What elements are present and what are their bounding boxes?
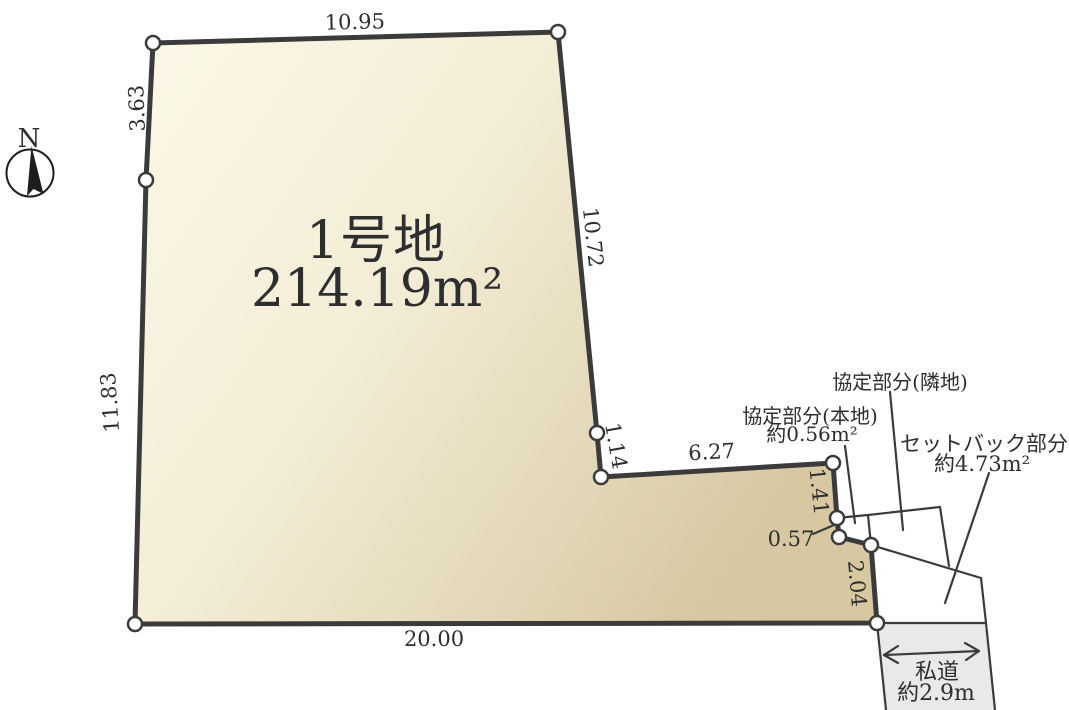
- dimension-left: 11.83: [96, 372, 124, 434]
- compass: N: [7, 124, 54, 197]
- vertex-marker: [870, 616, 884, 630]
- agreement-subject-area-label: 約0.56m²: [766, 422, 858, 446]
- setback-area-label: 約4.73m²: [934, 452, 1030, 476]
- vertex-marker: [594, 470, 608, 484]
- parcel-1-shape: [135, 32, 877, 624]
- leader-agreement-neighbor: [890, 392, 903, 530]
- dimension-right-step2: 0.57: [768, 527, 815, 551]
- vertex-marker: [128, 617, 142, 631]
- setback-divider-line: [871, 545, 981, 578]
- setback-right-line: [981, 578, 986, 623]
- compass-north-label: N: [18, 124, 41, 154]
- leader-agreement-subject: [845, 446, 855, 523]
- road-width-label: 約2.9m: [897, 681, 975, 706]
- dimension-right-step1: 1.41: [805, 467, 834, 516]
- dimension-notch-step: 1.14: [600, 421, 632, 471]
- dimension-right-step3: 2.04: [843, 559, 871, 608]
- dimension-top: 10.95: [324, 9, 385, 35]
- vertex-marker: [832, 530, 846, 544]
- dimension-upper-left: 3.63: [124, 84, 150, 132]
- agreement-neighbor-label: 協定部分(隣地): [832, 370, 968, 394]
- vertex-marker: [551, 25, 565, 39]
- vertex-marker: [146, 36, 160, 50]
- plot-diagram-canvas: N 1号地 214.19m² 10.95 3.63 11.83 10.72 1.…: [0, 0, 1069, 710]
- dimension-notch-bottom: 6.27: [688, 439, 736, 465]
- dimension-bottom: 20.00: [404, 627, 464, 651]
- agreement-right-line: [940, 507, 949, 566]
- vertex-marker: [139, 173, 153, 187]
- land-plot-diagram: N 1号地 214.19m² 10.95 3.63 11.83 10.72 1.…: [0, 0, 1069, 710]
- parcel-area-label: 214.19m²: [251, 259, 503, 319]
- vertex-marker: [864, 538, 878, 552]
